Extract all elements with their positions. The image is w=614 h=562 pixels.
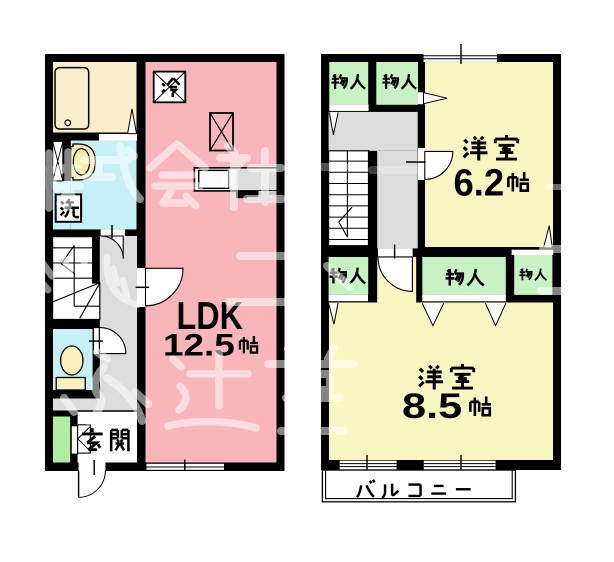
svg-text:8.5: 8.5	[402, 387, 462, 426]
svg-text:6.2: 6.2	[454, 161, 505, 204]
